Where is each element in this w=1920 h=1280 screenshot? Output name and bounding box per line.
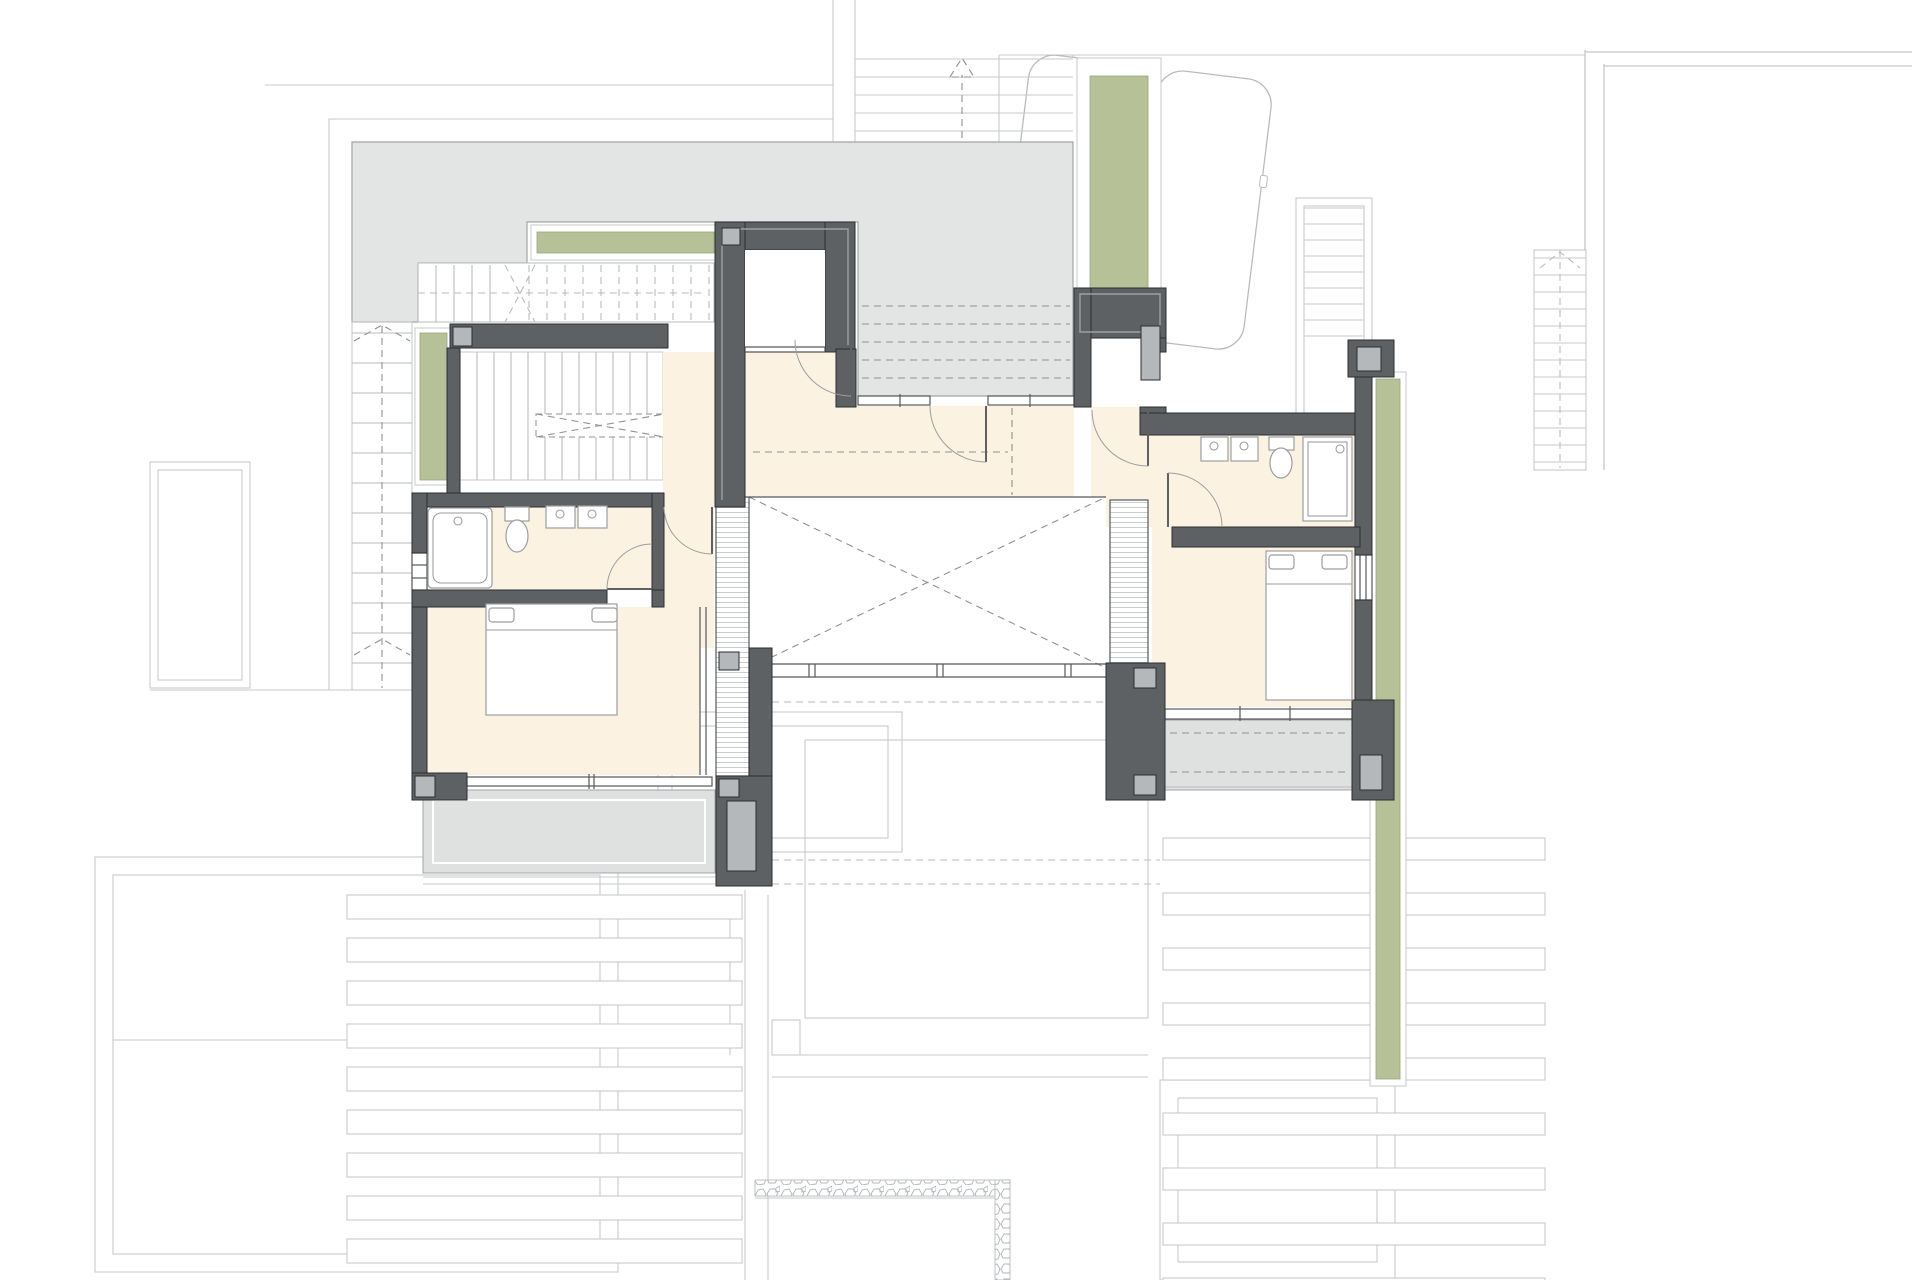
pool-stone-edge-top [755,1180,1010,1196]
planter-strip-top [537,232,714,253]
pergola-louvers-right [1163,838,1545,1280]
bedroom-east-window [1355,555,1372,600]
void-window-west [716,497,749,776]
swimming-pool [755,1180,1010,1280]
column-icon [1357,347,1381,371]
planter-strip-west [420,333,447,480]
column-icon [719,779,739,797]
balcony-west [423,790,715,873]
column-icon [719,652,739,670]
louver-slat [1163,1058,1545,1080]
shower-icon [1303,437,1352,521]
louver-slat [347,1110,742,1134]
bathroom-west-window [412,553,427,590]
pool-stone-edge-right [995,1180,1010,1280]
stairwell-opening [745,250,825,347]
washbasin-icon [1201,437,1228,461]
site-stair-northeast [1304,208,1364,336]
column-icon [453,327,472,346]
exterior-stair-east [1534,250,1586,470]
louver-slat [1163,838,1545,860]
louver-slat [347,1153,742,1177]
louver-slat [347,938,742,962]
louver-slat [1163,1168,1545,1190]
void-window-east [1110,500,1148,663]
louver-slat [347,1067,742,1091]
bed-icon [1266,551,1352,700]
column-icon [1134,668,1156,688]
upper-terrace-stair [418,263,714,322]
bed-icon [486,604,617,715]
louver-slat [347,895,742,919]
louver-slat [1163,893,1545,915]
washbasin-icon [578,506,607,528]
balcony-east [1165,720,1352,790]
louver-slat [347,981,742,1005]
column-icon [1134,775,1156,795]
louver-slat [1163,948,1545,970]
louver-slat [1163,1113,1545,1135]
column-icon [415,776,435,797]
washbasin-icon [1231,437,1258,461]
louver-slat [347,1196,742,1220]
louver-slat [1163,1003,1545,1025]
pergola-louvers-left [347,895,742,1263]
toilet-icon [1269,437,1294,478]
washbasin-icon [546,506,575,528]
floor-plan-canvas [0,0,1920,1280]
planter-strip-north [1090,76,1148,288]
pocket-door-panel [1141,326,1160,380]
louver-slat [347,1239,742,1263]
louver-slat [1163,1223,1545,1245]
floor-plan-drawing [0,0,1920,1280]
pier-slot [1360,755,1382,790]
column-icon [722,228,740,245]
interior-stair [460,352,664,480]
louver-slat [347,1024,742,1048]
exterior-stair-west [352,322,412,690]
double-height-void [749,497,1106,677]
bedroom-east-south-window [1165,706,1352,721]
toilet-icon [505,507,529,552]
pier-slot [727,801,756,871]
bedroom-west-south-window [467,774,712,789]
bathtub-icon [428,508,492,588]
